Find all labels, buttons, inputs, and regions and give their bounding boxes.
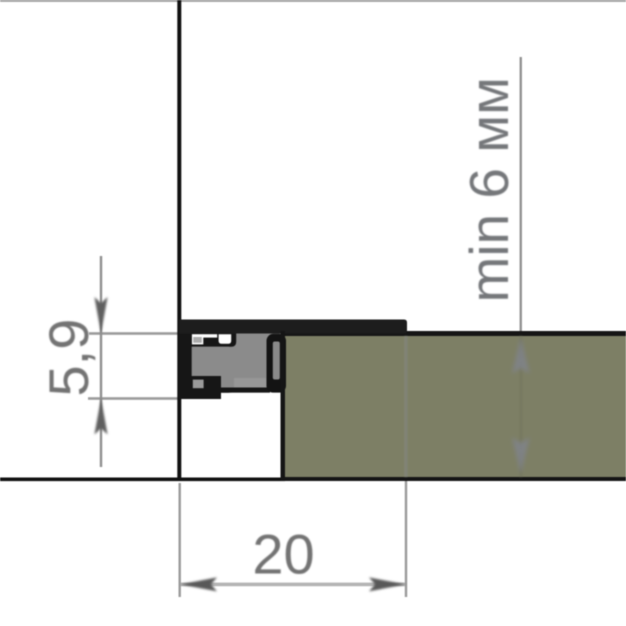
svg-text:20: 20	[252, 523, 314, 586]
svg-text:5,9: 5,9	[37, 319, 100, 397]
svg-text:min 6 мм: min 6 мм	[458, 77, 520, 302]
